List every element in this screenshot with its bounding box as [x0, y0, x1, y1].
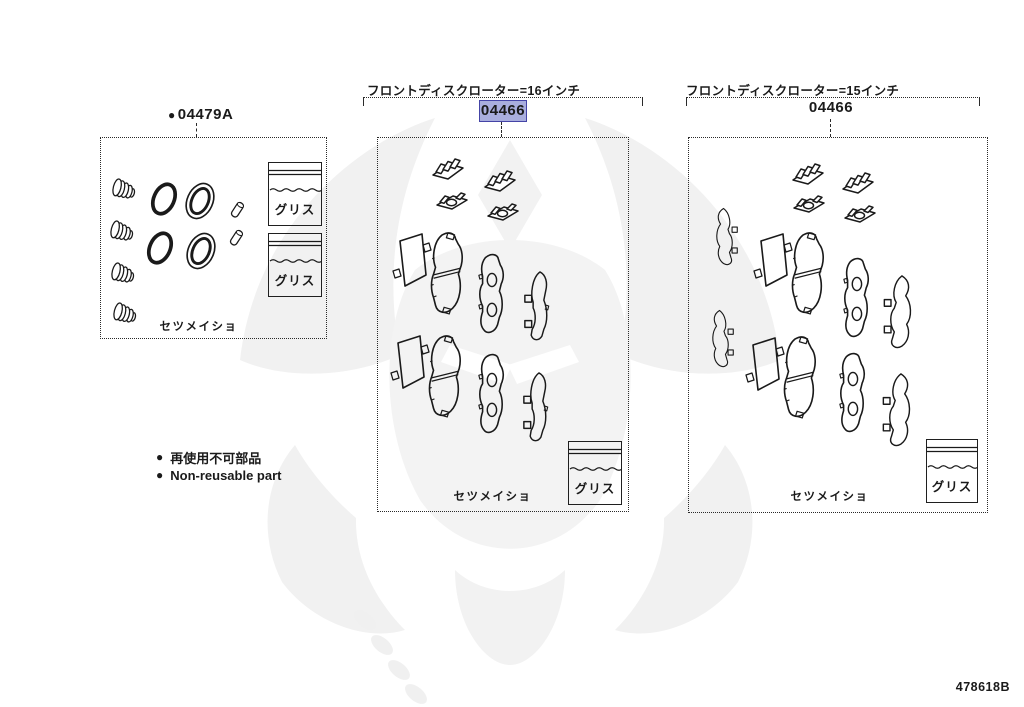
instruction-sheet-label: セツメイショ — [156, 318, 241, 334]
grease-label: グリス — [927, 476, 977, 495]
curved-shim-illustration — [713, 310, 733, 366]
non-reusable-bullet-icon: ● — [168, 108, 176, 122]
non-reusable-bullet-icon: ● — [156, 469, 163, 481]
curved-shim-illustration — [883, 374, 909, 446]
cylinder-boot-illustration — [112, 302, 137, 324]
leader-line-seal-kit — [196, 123, 197, 137]
pad-fitting-clip-illustration — [793, 164, 823, 184]
figure-code: 478618B — [930, 680, 1010, 694]
parts-diagram-page: ●04479A グリス グリス — [0, 0, 1024, 707]
pad-fitting-clip-illustration — [433, 159, 463, 179]
part-number-04466-16-highlight[interactable]: 04466 — [479, 100, 527, 122]
brake-pad-holes-illustration — [840, 354, 864, 432]
brake-pad-holes-illustration — [479, 355, 503, 433]
pad-fitting-clip-illustration — [488, 204, 518, 220]
curved-shim-illustration — [884, 276, 910, 348]
group-header-16inch: フロントディスクローター=16インチ — [367, 80, 580, 99]
legend-jp-text: 再使用不可部品 — [170, 448, 261, 467]
group-header-15inch: フロントディスクローター=15インチ — [686, 80, 899, 99]
brake-pad-illustration — [784, 337, 815, 418]
grease-sachet: グリス — [268, 162, 322, 226]
grease-label: グリス — [269, 270, 321, 289]
part-number-04479A-text: 04479A — [178, 106, 234, 123]
piston-dust-boot-illustration — [182, 229, 220, 273]
grease-label: グリス — [569, 478, 621, 497]
side-shim-illustration — [525, 272, 549, 340]
pin-cap-illustration — [230, 201, 244, 218]
anti-squeal-shim-illustration — [391, 336, 429, 388]
brake-pad-illustration — [429, 336, 460, 417]
part-number-04466-16-text: 04466 — [481, 102, 525, 119]
seal-kit-box: グリス グリス セツメイショ — [100, 137, 327, 339]
brake-pad-illustration — [431, 233, 462, 314]
pad-kit-15-box: グリス セツメイショ — [688, 137, 988, 513]
part-number-04466-15[interactable]: 04466 — [799, 99, 863, 116]
piston-dust-boot-illustration — [181, 179, 219, 223]
grease-sachet: グリス — [268, 233, 322, 297]
cylinder-boot-illustration — [110, 262, 135, 284]
pad-fitting-clip-illustration — [437, 193, 467, 209]
grease-sachet: グリス — [926, 439, 978, 503]
leader-line-16inch — [501, 122, 502, 137]
part-number-04466-15-text: 04466 — [809, 99, 853, 116]
pad-kit-16-box: グリス セツメイショ — [377, 137, 629, 512]
legend-en-text: Non-reusable part — [170, 468, 281, 483]
piston-seal-ring-illustration — [144, 230, 175, 266]
pad-fitting-clip-illustration — [794, 196, 824, 212]
anti-squeal-shim-illustration — [754, 234, 792, 286]
instruction-sheet-label: セツメイショ — [787, 488, 872, 504]
leader-line-15inch — [830, 119, 831, 137]
grease-label: グリス — [269, 199, 321, 218]
pad-fitting-clip-illustration — [843, 173, 873, 193]
instruction-sheet-label: セツメイショ — [450, 488, 535, 504]
anti-squeal-shim-illustration — [746, 338, 784, 390]
part-number-04479A[interactable]: ●04479A — [168, 106, 233, 123]
brake-pad-illustration — [792, 233, 823, 314]
legend-row-en: ● Non-reusable part — [156, 466, 282, 484]
legend-row-jp: ● 再使用不可部品 — [156, 448, 282, 466]
pad-fitting-clip-illustration — [485, 171, 515, 191]
side-shim-illustration — [524, 373, 548, 441]
pad-fitting-clip-illustration — [845, 206, 875, 222]
pin-cap-illustration — [229, 229, 243, 246]
cylinder-boot-illustration — [111, 178, 136, 200]
anti-squeal-shim-illustration — [393, 234, 431, 286]
brake-pad-holes-illustration — [844, 259, 868, 337]
non-reusable-bullet-icon: ● — [156, 451, 163, 463]
cylinder-boot-illustration — [109, 220, 134, 242]
grease-sachet: グリス — [568, 441, 622, 505]
legend: ● 再使用不可部品 ● Non-reusable part — [156, 448, 282, 484]
piston-seal-ring-illustration — [148, 181, 179, 217]
curved-shim-illustration — [717, 208, 737, 264]
brake-pad-holes-illustration — [479, 255, 503, 333]
